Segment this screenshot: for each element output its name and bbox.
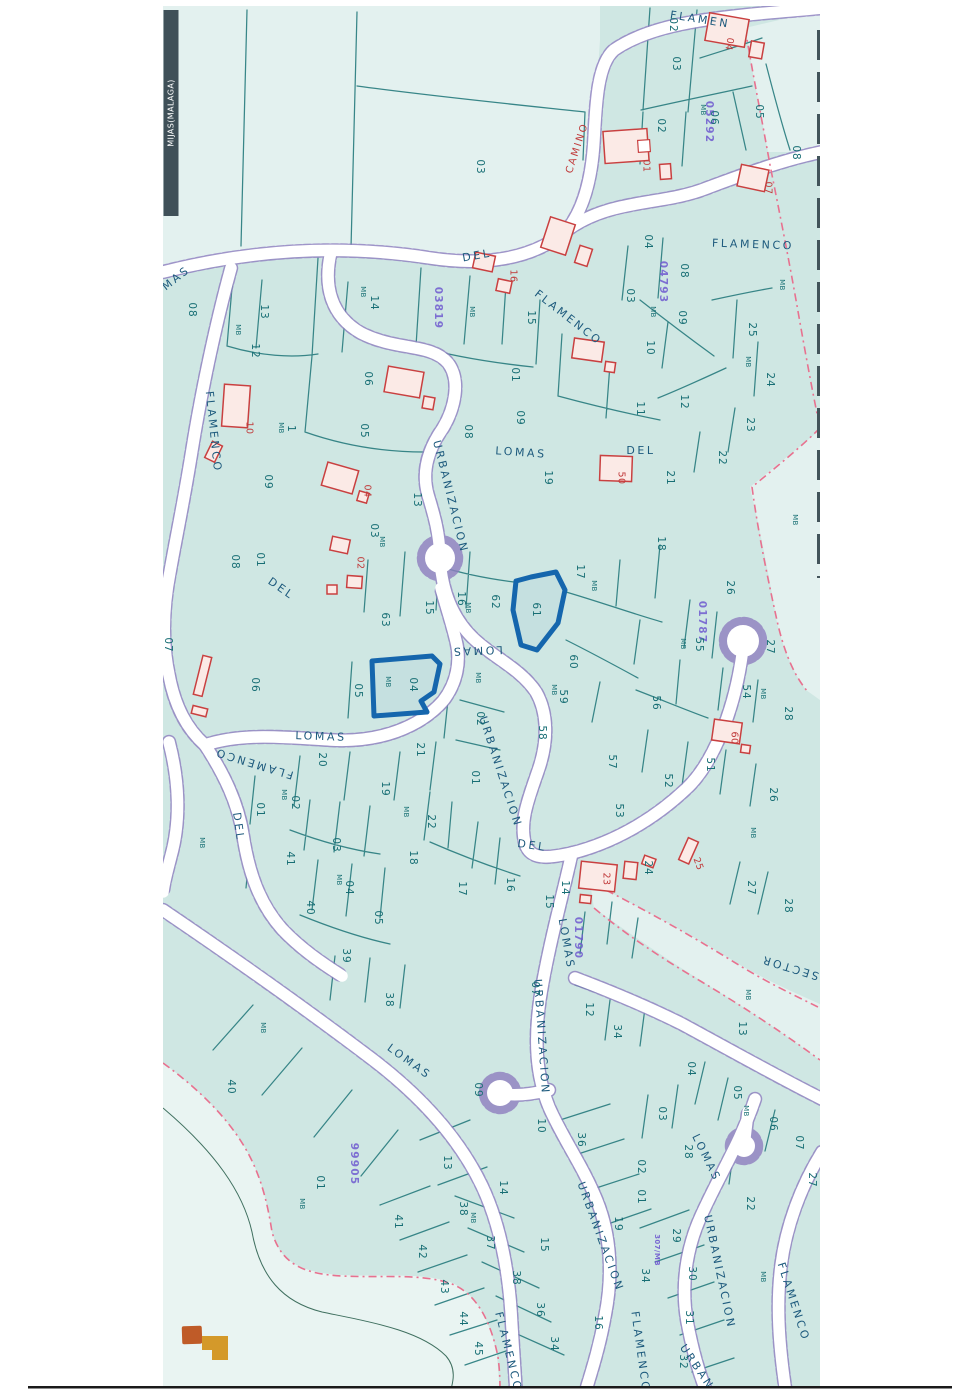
parcel-number-label: 62 xyxy=(489,594,501,609)
parcel-number-label: 09 xyxy=(262,474,274,489)
house-number-label: 02 xyxy=(355,556,366,569)
mb-label: MB xyxy=(791,514,799,526)
parcel-number-label: 10 xyxy=(644,340,656,355)
parcel-number-label: 15 xyxy=(538,1237,550,1252)
mb-label: MB xyxy=(359,286,367,298)
mb-label: MB xyxy=(749,827,757,839)
parcel-number-label: 03 xyxy=(330,837,342,852)
parcel-number-label: 18 xyxy=(655,536,667,551)
parcel-number-label: 26 xyxy=(724,580,736,595)
house-number-label: 60 xyxy=(729,731,740,744)
parcel-number-label: 08 xyxy=(790,145,802,160)
parcel-number-label: 59 xyxy=(557,689,569,704)
mb-label: MB xyxy=(679,638,687,650)
mb-label: MB xyxy=(198,837,206,849)
parcel-number-label: 07 xyxy=(529,981,541,996)
mb-label: MB xyxy=(744,989,752,1001)
parcel-number-label: 41 xyxy=(392,1214,404,1229)
parcel-number-label: 09 xyxy=(676,310,688,325)
cadastral-map: MIJAS(MALAGA) OMASFLAMENDELFLAMENCOFLAME… xyxy=(0,0,979,1393)
parcel-number-label: 05 xyxy=(352,683,364,698)
parcel-number-label: 52 xyxy=(662,773,674,788)
parcel-number-label: 54 xyxy=(740,684,752,699)
parcel-number-label: 27 xyxy=(745,880,757,895)
parcel-number-label: 63 xyxy=(379,612,391,627)
parcel-number-label: 13 xyxy=(258,304,270,319)
parcel-number-label: 17 xyxy=(574,564,586,579)
mb-label: MB xyxy=(759,688,767,700)
mb-label: MB xyxy=(469,1212,477,1224)
mb-label: MB xyxy=(259,1022,267,1034)
parcel-number-label: 57 xyxy=(606,754,618,769)
parcel-number-label: 15 xyxy=(525,310,537,325)
parcel-number-label: 01 xyxy=(254,802,266,817)
parcel-number-label: 19 xyxy=(542,470,554,485)
parcel-number-label: 16 xyxy=(592,1315,604,1330)
parcel-number-label: 05 xyxy=(753,104,765,119)
parcel-number-label: 11 xyxy=(634,401,646,416)
parcel-number-label: 10 xyxy=(535,1118,547,1133)
parcel-number-label: 14 xyxy=(368,295,380,310)
parcel-number-label: 27 xyxy=(806,1172,818,1187)
parcel-number-label: 03 xyxy=(474,159,486,174)
parcel-number-label: 36 xyxy=(575,1132,587,1147)
parcel-number-label: 39 xyxy=(340,948,352,963)
mb-label: MB xyxy=(378,536,386,548)
mb-label: MB xyxy=(699,104,707,116)
mb-label: MB xyxy=(778,279,786,291)
parcel-number-label: 30 xyxy=(686,1266,698,1281)
parcel-number-label: 38 xyxy=(510,1270,522,1285)
parcel-number-label: 12 xyxy=(678,394,690,409)
parcel-number-label: 04 xyxy=(407,677,419,692)
street-name-label: LOMAS xyxy=(295,729,347,744)
parcel-number-label: 37 xyxy=(484,1235,496,1250)
parcel-number-label: 19 xyxy=(379,781,391,796)
parcel-number-label: 1 xyxy=(285,425,297,433)
parcel-number-label: 01 xyxy=(509,367,521,382)
mb-label: MB xyxy=(744,356,752,368)
parcel-number-label: 02 xyxy=(635,1159,647,1174)
parcel-number-label: 01 xyxy=(254,552,266,567)
parcel-number-label: 04 xyxy=(685,1061,697,1076)
parcel-number-label: 60 xyxy=(567,654,579,669)
parcel-number-label: 32 xyxy=(677,1354,689,1369)
parcel-number-label: 44 xyxy=(457,1311,469,1326)
house-number-label: 10 xyxy=(244,421,255,434)
parcel-number-label: 07 xyxy=(162,637,174,652)
parcel-number-label: 04 xyxy=(642,234,654,249)
parcel-number-label: 18 xyxy=(407,850,419,865)
parcel-number-label: 34 xyxy=(548,1336,560,1351)
sector-code-label: 307/MB xyxy=(653,1234,661,1266)
parcel-number-label: 06 xyxy=(249,677,261,692)
scanned-cadastral-page: MIJAS(MALAGA) OMASFLAMENDELFLAMENCOFLAME… xyxy=(0,0,979,1393)
parcel-number-label: 03 xyxy=(656,1106,668,1121)
parcel-number-label: 40 xyxy=(225,1079,237,1094)
mb-label: MB xyxy=(590,580,598,592)
parcel-number-label: 15 xyxy=(423,600,435,615)
parcel-number-label: 22 xyxy=(716,450,728,465)
parcel-number-label: 42 xyxy=(416,1244,428,1259)
mb-label: MB xyxy=(474,672,482,684)
street-name-label: DEL xyxy=(626,444,655,457)
parcel-number-label: 20 xyxy=(316,752,328,767)
parcel-number-label: 34 xyxy=(611,1024,623,1039)
mb-label: MB xyxy=(742,1105,750,1117)
parcel-number-label: 16 xyxy=(504,877,516,892)
parcel-number-label: 31 xyxy=(683,1310,695,1325)
house-number-label: 07 xyxy=(763,181,774,194)
page-bottom-border xyxy=(28,1386,952,1389)
parcel-number-label: 03 xyxy=(670,56,682,71)
house-number-label: 16 xyxy=(508,269,519,282)
house-number-label: 23 xyxy=(601,872,612,885)
mb-label: MB xyxy=(384,676,392,688)
parcel-number-label: 61 xyxy=(530,602,542,617)
parcel-number-label: 17 xyxy=(456,881,468,896)
parcel-number-label: 01 xyxy=(635,1189,647,1204)
parcel-number-label: 23 xyxy=(744,417,756,432)
parcel-number-label: 56 xyxy=(650,695,662,710)
parcel-number-label: 14 xyxy=(559,880,571,895)
parcel-number-label: 09 xyxy=(472,1082,484,1097)
parcel-number-label: 19 xyxy=(612,1216,624,1231)
mb-label: MB xyxy=(759,1271,767,1283)
municipality-label: MIJAS(MALAGA) xyxy=(167,79,176,147)
parcel-number-label: 01 xyxy=(314,1175,326,1190)
mb-label: MB xyxy=(464,602,472,614)
house-number-label: 04 xyxy=(722,37,735,52)
parcel-number-label: 55 xyxy=(693,637,705,652)
parcel-number-label: 58 xyxy=(536,725,548,740)
sector-code-label: 01790 xyxy=(572,917,584,960)
parcel-number-label: 02 xyxy=(289,795,301,810)
mb-label: MB xyxy=(280,789,288,801)
parcel-number-label: 24 xyxy=(764,372,776,387)
parcel-number-label: 28 xyxy=(782,898,794,913)
parcel-number-label: 05 xyxy=(358,423,370,438)
parcel-number-label: 53 xyxy=(613,803,625,818)
parcel-number-label: 29 xyxy=(670,1228,682,1243)
parcel-number-label: 08 xyxy=(462,424,474,439)
parcel-number-label: 34 xyxy=(639,1268,651,1283)
parcel-number-label: 25 xyxy=(746,322,758,337)
parcel-number-label: 14 xyxy=(497,1180,509,1195)
mb-label: MB xyxy=(298,1198,306,1210)
parcel-number-label: 12 xyxy=(249,343,261,358)
parcel-number-label: 02 xyxy=(667,17,679,32)
parcel-number-label: 06 xyxy=(767,1116,779,1131)
parcel-number-label: 04 xyxy=(343,880,355,895)
parcel-number-label: 36 xyxy=(534,1302,546,1317)
parcel-number-label: 08 xyxy=(229,554,241,569)
parcel-number-label: 13 xyxy=(441,1155,453,1170)
parcel-number-label: 26 xyxy=(767,787,779,802)
mb-label: MB xyxy=(402,806,410,818)
parcel-number-label: 12 xyxy=(583,1002,595,1017)
parcel-number-label: 13 xyxy=(411,492,423,507)
parcel-number-label: 02 xyxy=(474,711,486,726)
mb-label: MB xyxy=(649,306,657,318)
mb-label: MB xyxy=(234,324,242,336)
parcel-number-label: 38 xyxy=(457,1201,469,1216)
house-number-label: 50 xyxy=(616,471,627,484)
parcel-number-label: 38 xyxy=(383,992,395,1007)
parcel-number-label: 22 xyxy=(425,814,437,829)
parcel-number-label: 51 xyxy=(704,757,716,772)
parcel-number-label: 22 xyxy=(744,1196,756,1211)
parcel-number-label: 24 xyxy=(642,860,654,875)
parcel-number-label: 21 xyxy=(664,470,676,485)
parcel-number-label: 45 xyxy=(472,1341,484,1356)
house-number-label: 04 xyxy=(362,484,373,497)
parcel-number-label: 05 xyxy=(372,910,384,925)
parcel-number-label: 03 xyxy=(624,288,636,303)
mb-label: MB xyxy=(277,422,285,434)
legend-orange-square xyxy=(182,1326,203,1345)
parcel-number-label: 43 xyxy=(438,1279,450,1294)
parcel-number-label: 05 xyxy=(731,1085,743,1100)
house-number-label: 01 xyxy=(641,159,652,172)
parcel-number-label: 07 xyxy=(793,1135,805,1150)
parcel-number-label: 13 xyxy=(736,1021,748,1036)
parcel-number-label: 08 xyxy=(186,302,198,317)
parcel-number-label: 01 xyxy=(469,770,481,785)
parcel-number-label: 41 xyxy=(284,851,296,866)
parcel-number-label: 06 xyxy=(362,371,374,386)
sector-code-label: 99905 xyxy=(348,1143,360,1186)
parcel-number-label: 15 xyxy=(543,894,555,909)
mb-label: MB xyxy=(550,684,558,696)
parcel-number-label: 40 xyxy=(304,900,316,915)
parcel-number-label: 27 xyxy=(764,639,776,654)
parcel-number-label: 28 xyxy=(782,706,794,721)
mb-label: MB xyxy=(335,874,343,886)
sector-code-label: 04793 xyxy=(657,261,669,304)
parcel-number-label: 09 xyxy=(514,410,526,425)
mb-label: MB xyxy=(468,306,476,318)
street-name-label: LOMAS xyxy=(451,643,503,658)
parcel-number-label: 06 xyxy=(708,110,720,125)
sector-code-label: 03819 xyxy=(432,287,444,330)
parcel-number-label: 21 xyxy=(414,742,426,757)
parcel-number-label: 28 xyxy=(682,1144,694,1159)
parcel-number-label: 08 xyxy=(678,263,690,278)
parcel-number-label: 02 xyxy=(655,118,667,133)
